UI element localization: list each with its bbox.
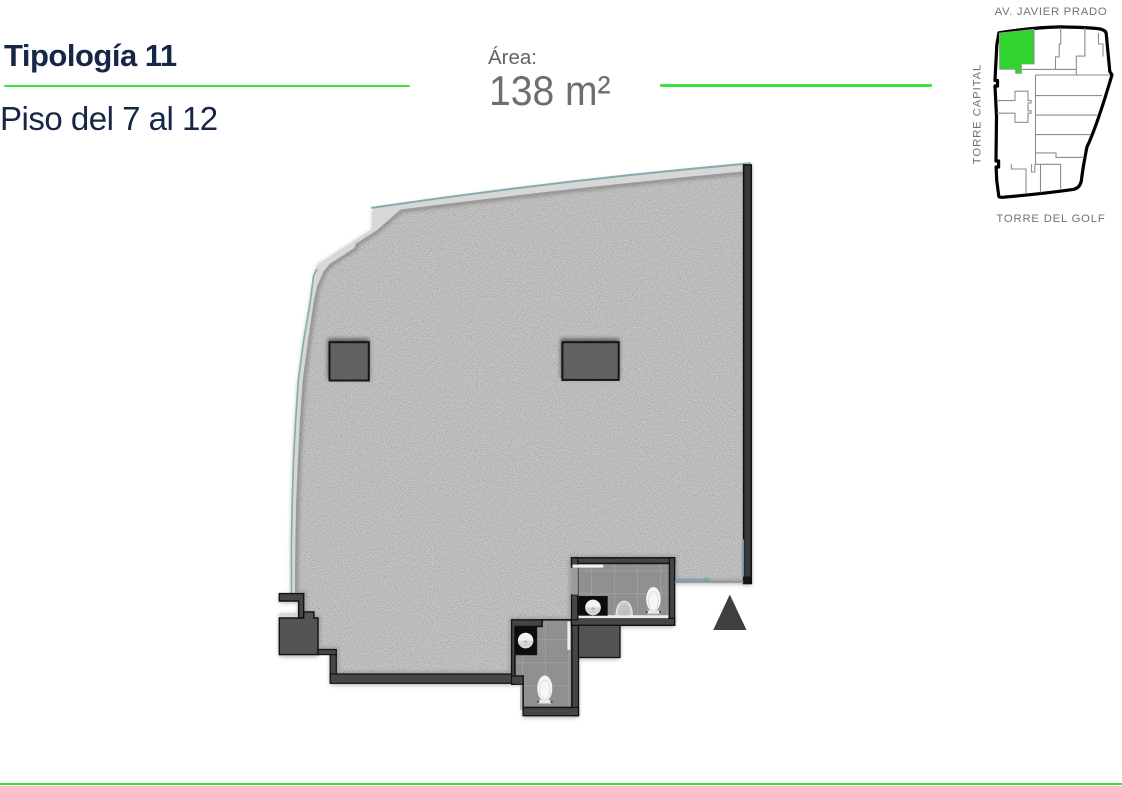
svg-text:AV. JAVIER PRADO: AV. JAVIER PRADO xyxy=(995,6,1108,18)
svg-text:TORRE CAPITAL: TORRE CAPITAL xyxy=(972,64,984,164)
svg-text:TORRE DEL GOLF: TORRE DEL GOLF xyxy=(996,213,1105,225)
